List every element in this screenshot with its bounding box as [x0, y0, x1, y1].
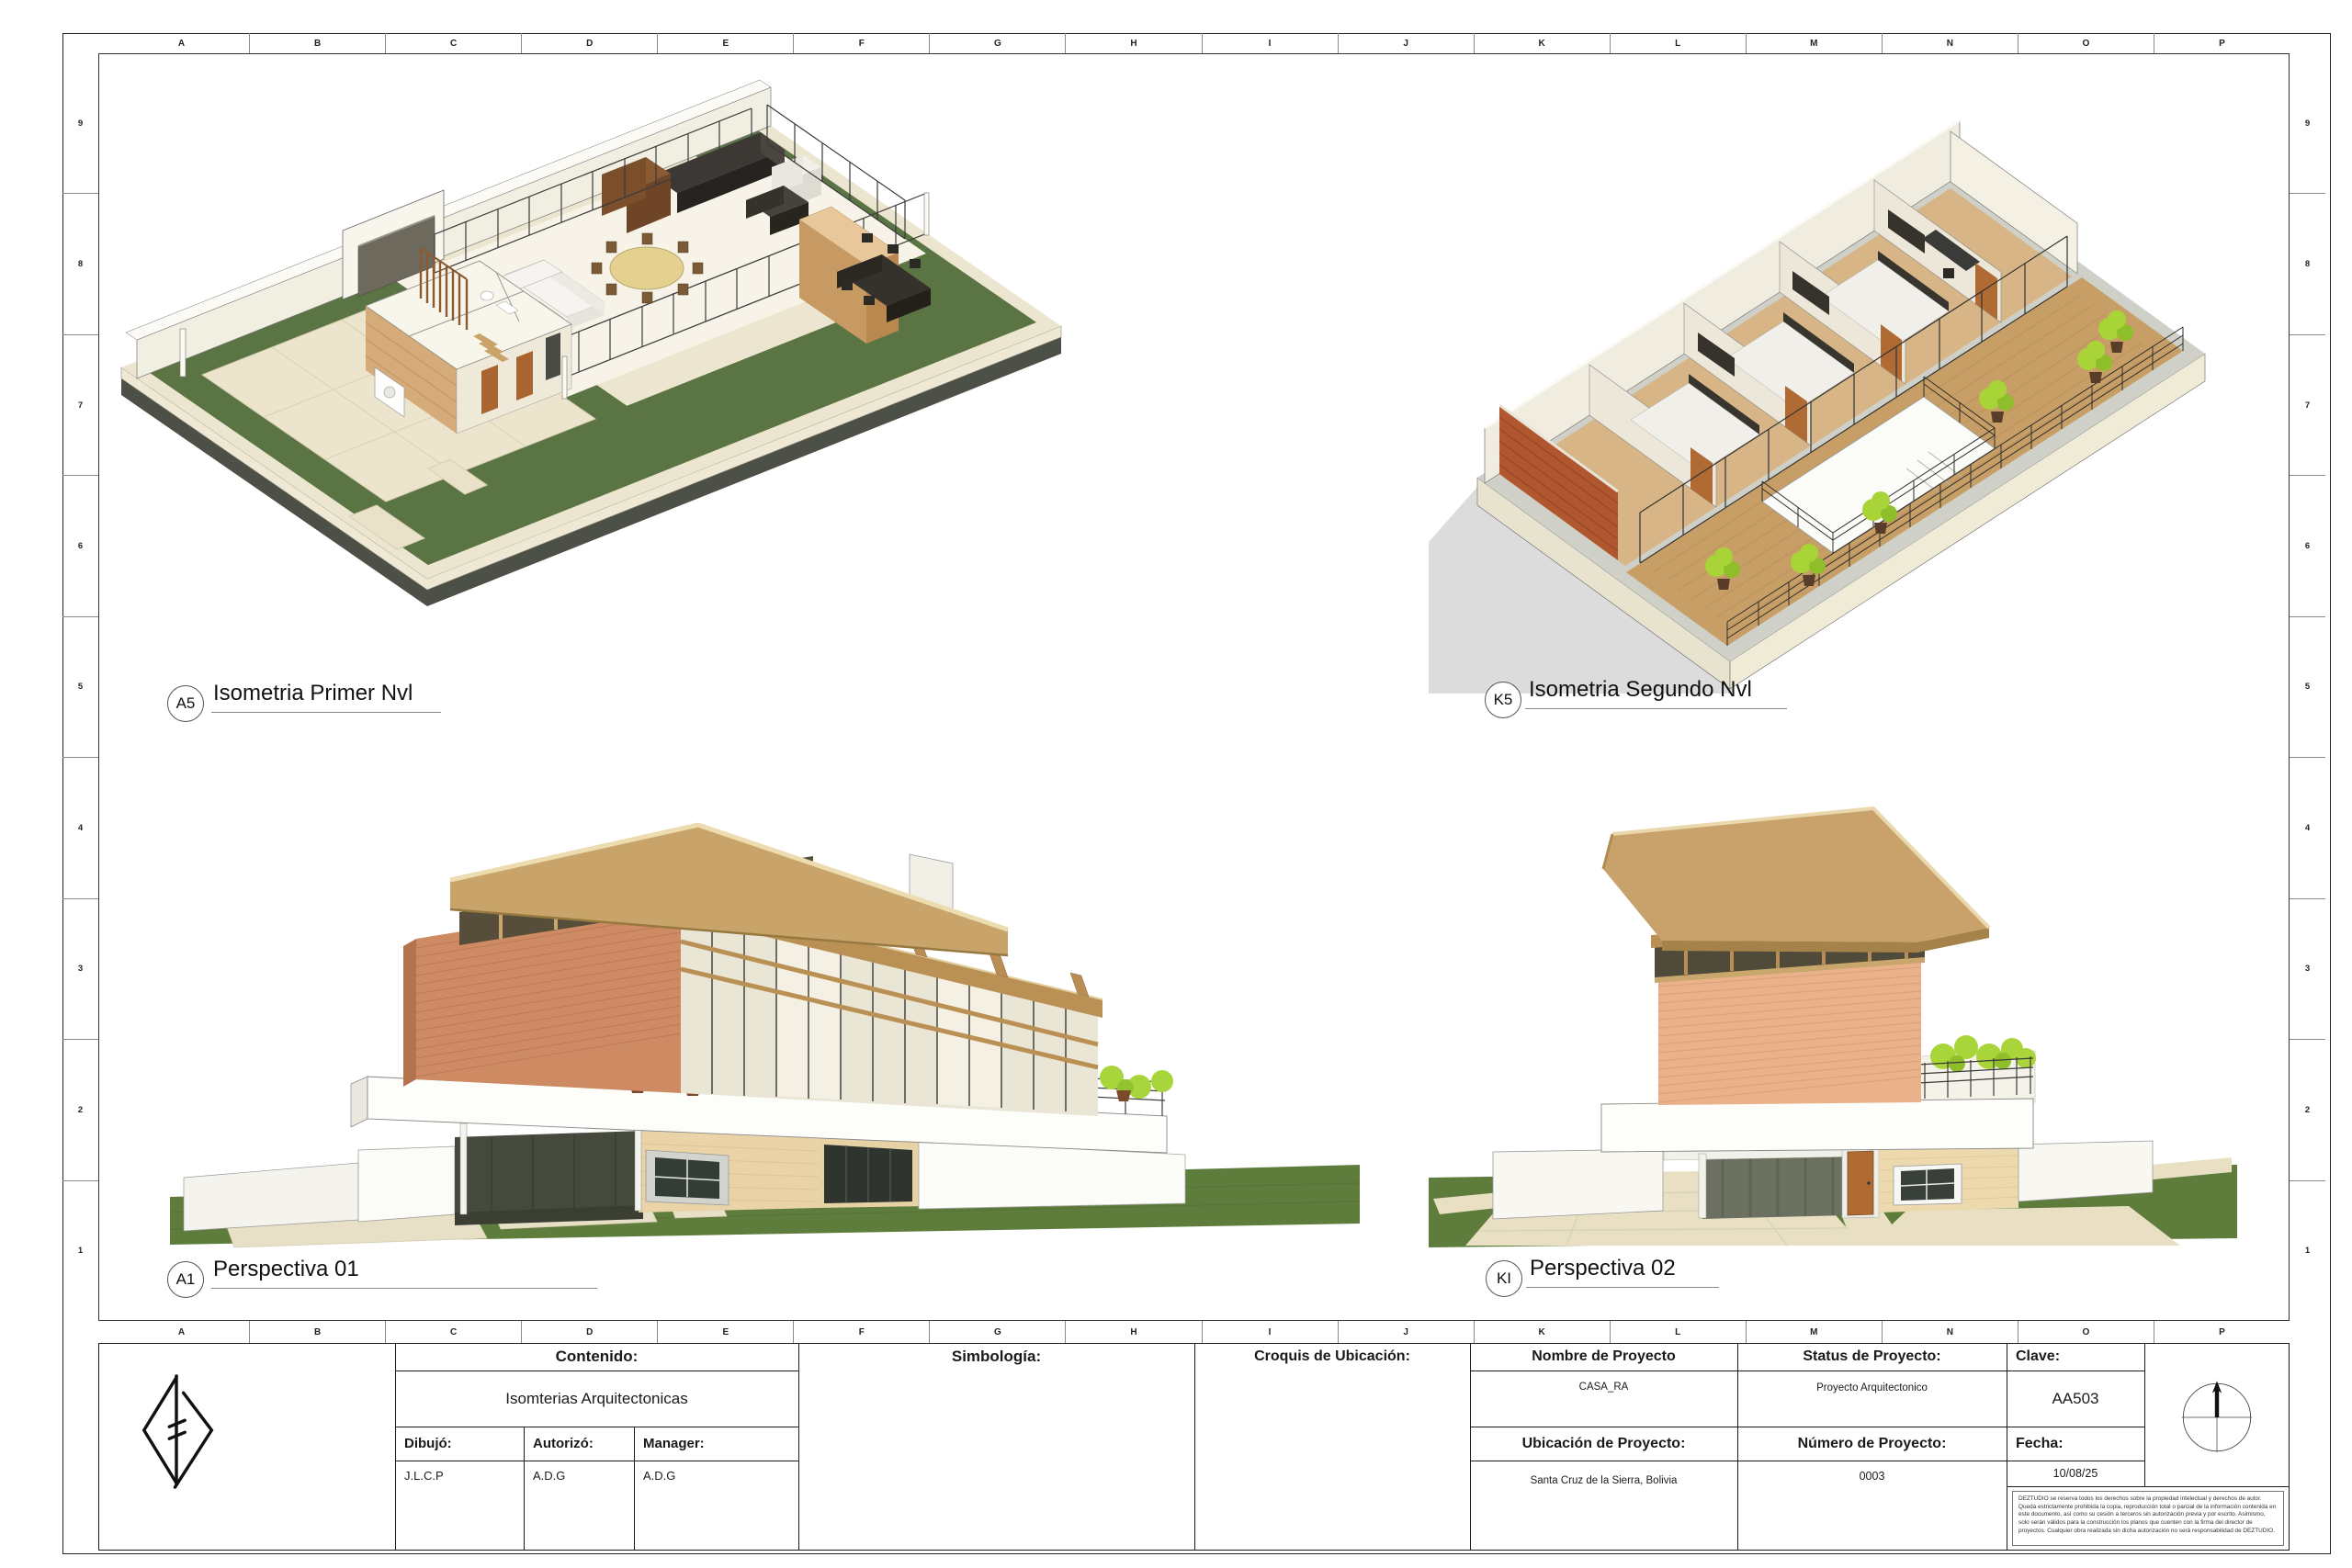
grid-number: 9: [62, 53, 98, 194]
grid-number: 8: [62, 194, 98, 334]
grid-letter: A: [114, 1321, 250, 1343]
grid-number: 7: [2290, 335, 2325, 476]
north-arrow-icon: [2177, 1377, 2257, 1458]
grid-number: 2: [2290, 1040, 2325, 1180]
copyright-disclaimer: DEZTUDIO se reserva todos los derechos s…: [2012, 1491, 2284, 1546]
view-tag-k5: K5: [1485, 682, 1521, 718]
grid-number: 3: [2290, 899, 2325, 1040]
status-proyecto-label: Status de Proyecto:: [1737, 1343, 2007, 1371]
grid-letter: H: [1066, 33, 1202, 53]
fecha-label: Fecha:: [2007, 1427, 2144, 1461]
divider: [1194, 1343, 1195, 1551]
grid-letter: N: [1883, 33, 2018, 53]
grid-letter: L: [1611, 33, 1747, 53]
view-title-underline: [1525, 708, 1787, 709]
simbologia-label: Simbología:: [798, 1343, 1194, 1371]
view-tag-a5: A5: [167, 685, 204, 722]
status-proyecto-value: Proyecto Arquitectonico: [1737, 1371, 2007, 1427]
brick-facade: [1658, 959, 1921, 1105]
grid-number: 1: [2290, 1181, 2325, 1321]
view-title-perspectiva-01: Perspectiva 01: [213, 1257, 359, 1282]
nombre-proyecto-label: Nombre de Proyecto: [1470, 1343, 1737, 1371]
grid-letter: O: [2018, 33, 2154, 53]
grid-letter: B: [250, 1321, 386, 1343]
grid-letter: H: [1066, 1321, 1202, 1343]
grid-letter: C: [386, 33, 522, 53]
contenido-label: Contenido:: [395, 1343, 798, 1371]
left-perimeter-wall: [184, 1163, 358, 1231]
grid-numbers-right: 987654321: [2290, 53, 2325, 1321]
view-title-underline: [211, 1288, 597, 1289]
render-perspectiva-02: [1429, 781, 2237, 1249]
autorizo-label: Autorizó:: [524, 1427, 634, 1461]
manager-value: A.D.G: [634, 1461, 798, 1551]
grid-letter: B: [250, 33, 386, 53]
grid-letter: I: [1203, 33, 1339, 53]
render-isometria-primer-nivel: [101, 64, 1075, 698]
white-slab: [1601, 1099, 2033, 1152]
grid-number: 1: [62, 1181, 98, 1321]
ubicacion-value: Santa Cruz de la Sierra, Bolivia: [1470, 1461, 1737, 1551]
grid-letter: P: [2154, 1321, 2290, 1343]
grid-letter: N: [1883, 1321, 2018, 1343]
divider: [798, 1343, 799, 1551]
grid-letter: P: [2154, 33, 2290, 53]
croquis-label: Croquis de Ubicación:: [1194, 1343, 1470, 1371]
grid-number: 9: [2290, 53, 2325, 194]
upper-floor: [403, 825, 1102, 1116]
grid-number: 5: [62, 617, 98, 758]
fecha-value: 10/08/25: [2007, 1461, 2144, 1486]
numero-proyecto-value: 0003: [1737, 1461, 2007, 1551]
grid-letter: G: [930, 1321, 1066, 1343]
grid-number: 5: [2290, 617, 2325, 758]
ubicacion-label: Ubicación de Proyecto:: [1470, 1427, 1737, 1461]
grid-letters-top: ABCDEFGHIJKLMNOP: [114, 33, 2290, 53]
grid-letter: C: [386, 1321, 522, 1343]
grid-letter: M: [1747, 1321, 1883, 1343]
grid-number: 8: [2290, 194, 2325, 334]
grid-letter: K: [1475, 1321, 1611, 1343]
clave-label: Clave:: [2007, 1343, 2144, 1371]
view-title-isometria-primer: Isometria Primer Nvl: [213, 681, 413, 706]
grid-numbers-left: 987654321: [62, 53, 98, 1321]
grid-letter: F: [794, 33, 930, 53]
clave-value: AA503: [2007, 1371, 2144, 1427]
grid-letter: E: [658, 33, 794, 53]
dibujo-value: J.L.C.P: [395, 1461, 524, 1551]
divider: [2007, 1486, 2290, 1487]
grid-number: 4: [2290, 758, 2325, 898]
divider: [2144, 1343, 2145, 1486]
carport-side-wall: [358, 1146, 455, 1222]
grid-letter: D: [522, 33, 658, 53]
grid-letter: J: [1339, 33, 1475, 53]
grid-letter: M: [1747, 33, 1883, 53]
manager-label: Manager:: [634, 1427, 798, 1461]
carport: [455, 1131, 643, 1225]
grid-number: 3: [62, 899, 98, 1040]
view-tag-a1: A1: [167, 1261, 204, 1298]
view-title-underline: [1526, 1287, 1719, 1288]
view-tag-ki: KI: [1486, 1260, 1522, 1297]
grid-letter: J: [1339, 1321, 1475, 1343]
contenido-value: Isomterias Arquitectonicas: [395, 1371, 798, 1427]
grid-letter: F: [794, 1321, 930, 1343]
grid-number: 6: [62, 476, 98, 616]
grid-letter: G: [930, 33, 1066, 53]
autorizo-value: A.D.G: [524, 1461, 634, 1551]
grid-letter: D: [522, 1321, 658, 1343]
grid-letter: E: [658, 1321, 794, 1343]
drawing-sheet: ABCDEFGHIJKLMNOP ABCDEFGHIJKLMNOP 987654…: [0, 0, 2352, 1568]
grid-letters-bottom: ABCDEFGHIJKLMNOP: [114, 1321, 2290, 1343]
view-title-isometria-segundo: Isometria Segundo Nvl: [1529, 677, 1752, 703]
grid-letter: A: [114, 33, 250, 53]
grid-number: 6: [2290, 476, 2325, 616]
numero-proyecto-label: Número de Proyecto:: [1737, 1427, 2007, 1461]
studio-logo-icon: [134, 1361, 219, 1499]
view-title-perspectiva-02: Perspectiva 02: [1530, 1256, 1676, 1281]
render-isometria-segundo-nivel: [1429, 101, 2219, 694]
view-title-underline: [211, 712, 441, 713]
grid-number: 2: [62, 1040, 98, 1180]
grid-number: 4: [62, 758, 98, 898]
render-perspectiva-01: [170, 781, 1364, 1249]
dibujo-label: Dibujó:: [395, 1427, 524, 1461]
nombre-proyecto-value: CASA_RA: [1470, 1371, 1737, 1427]
grid-letter: I: [1203, 1321, 1339, 1343]
grid-letter: L: [1611, 1321, 1747, 1343]
grid-letter: K: [1475, 33, 1611, 53]
grid-letter: O: [2018, 1321, 2154, 1343]
grid-number: 7: [62, 335, 98, 476]
